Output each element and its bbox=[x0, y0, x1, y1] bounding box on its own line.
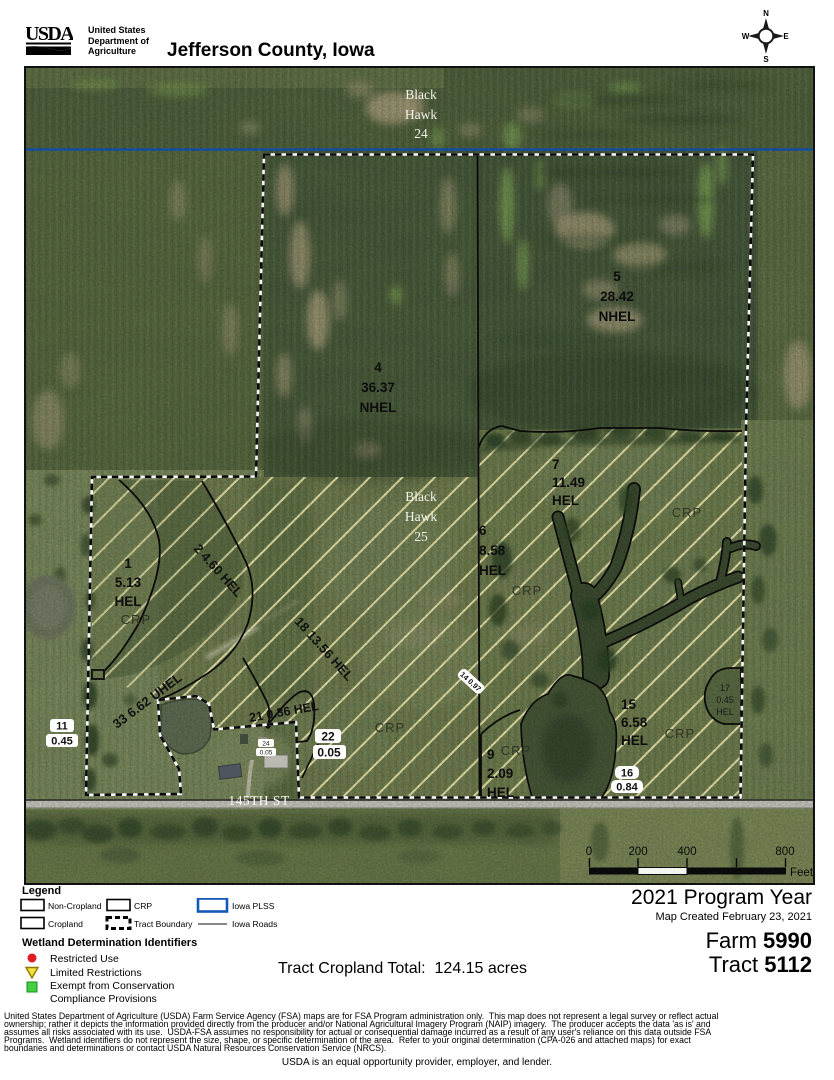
svg-text:36.37: 36.37 bbox=[361, 380, 395, 395]
svg-text:E: E bbox=[783, 32, 789, 41]
svg-text:800: 800 bbox=[775, 846, 794, 858]
svg-text:6: 6 bbox=[479, 523, 487, 538]
svg-text:28.42: 28.42 bbox=[600, 289, 634, 304]
svg-text:Hawk: Hawk bbox=[405, 107, 437, 122]
svg-text:0.05: 0.05 bbox=[317, 746, 341, 760]
svg-text:8.58: 8.58 bbox=[479, 543, 506, 558]
svg-text:6.58: 6.58 bbox=[621, 715, 648, 730]
svg-text:5: 5 bbox=[613, 269, 621, 284]
svg-text:9: 9 bbox=[487, 747, 495, 762]
svg-text:Feet: Feet bbox=[790, 867, 814, 879]
svg-text:HEL: HEL bbox=[479, 563, 506, 578]
svg-text:HEL: HEL bbox=[487, 785, 514, 800]
svg-text:HEL: HEL bbox=[716, 707, 734, 717]
svg-text:11: 11 bbox=[56, 721, 68, 733]
svg-text:Exempt from Conservation: Exempt from Conservation bbox=[50, 980, 174, 992]
svg-text:CRP: CRP bbox=[375, 720, 405, 735]
svg-text:Hawk: Hawk bbox=[405, 509, 437, 524]
svg-text:0.45: 0.45 bbox=[51, 736, 72, 748]
svg-text:N: N bbox=[763, 9, 769, 18]
svg-text:W: W bbox=[742, 32, 750, 41]
svg-text:7: 7 bbox=[552, 457, 560, 472]
svg-text:USDA: USDA bbox=[26, 25, 73, 45]
svg-text:2.09: 2.09 bbox=[487, 766, 513, 781]
svg-text:NHEL: NHEL bbox=[599, 309, 636, 324]
svg-text:CRP: CRP bbox=[501, 743, 531, 758]
svg-text:CRP: CRP bbox=[672, 505, 702, 520]
svg-text:400: 400 bbox=[677, 846, 696, 858]
svg-text:24: 24 bbox=[414, 126, 428, 141]
svg-text:25: 25 bbox=[414, 529, 428, 544]
svg-text:NHEL: NHEL bbox=[360, 400, 397, 415]
svg-text:Compliance Provisions: Compliance Provisions bbox=[50, 993, 157, 1005]
svg-text:HEL: HEL bbox=[115, 594, 142, 609]
svg-text:11.49: 11.49 bbox=[552, 475, 585, 490]
svg-text:0: 0 bbox=[586, 846, 592, 858]
svg-text:17: 17 bbox=[720, 683, 730, 693]
svg-text:1: 1 bbox=[124, 556, 132, 571]
svg-text:200: 200 bbox=[628, 846, 647, 858]
svg-text:5.13: 5.13 bbox=[115, 575, 142, 590]
svg-text:CRP: CRP bbox=[512, 583, 542, 598]
svg-text:Black: Black bbox=[405, 489, 437, 504]
svg-text:CRP: CRP bbox=[665, 726, 695, 741]
svg-text:HEL: HEL bbox=[552, 493, 579, 508]
svg-text:4: 4 bbox=[374, 360, 382, 375]
svg-text:22: 22 bbox=[321, 730, 335, 744]
svg-text:0.45: 0.45 bbox=[716, 695, 734, 705]
svg-text:Black: Black bbox=[405, 87, 437, 102]
svg-text:HEL: HEL bbox=[621, 733, 648, 748]
svg-text:15: 15 bbox=[621, 697, 637, 712]
svg-text:0.05: 0.05 bbox=[260, 750, 273, 757]
svg-text:24: 24 bbox=[262, 741, 270, 748]
svg-text:145TH ST: 145TH ST bbox=[228, 793, 290, 808]
svg-text:16: 16 bbox=[621, 768, 633, 780]
svg-text:CRP: CRP bbox=[121, 612, 151, 627]
svg-text:0.84: 0.84 bbox=[616, 782, 638, 794]
svg-text:S: S bbox=[763, 55, 769, 64]
